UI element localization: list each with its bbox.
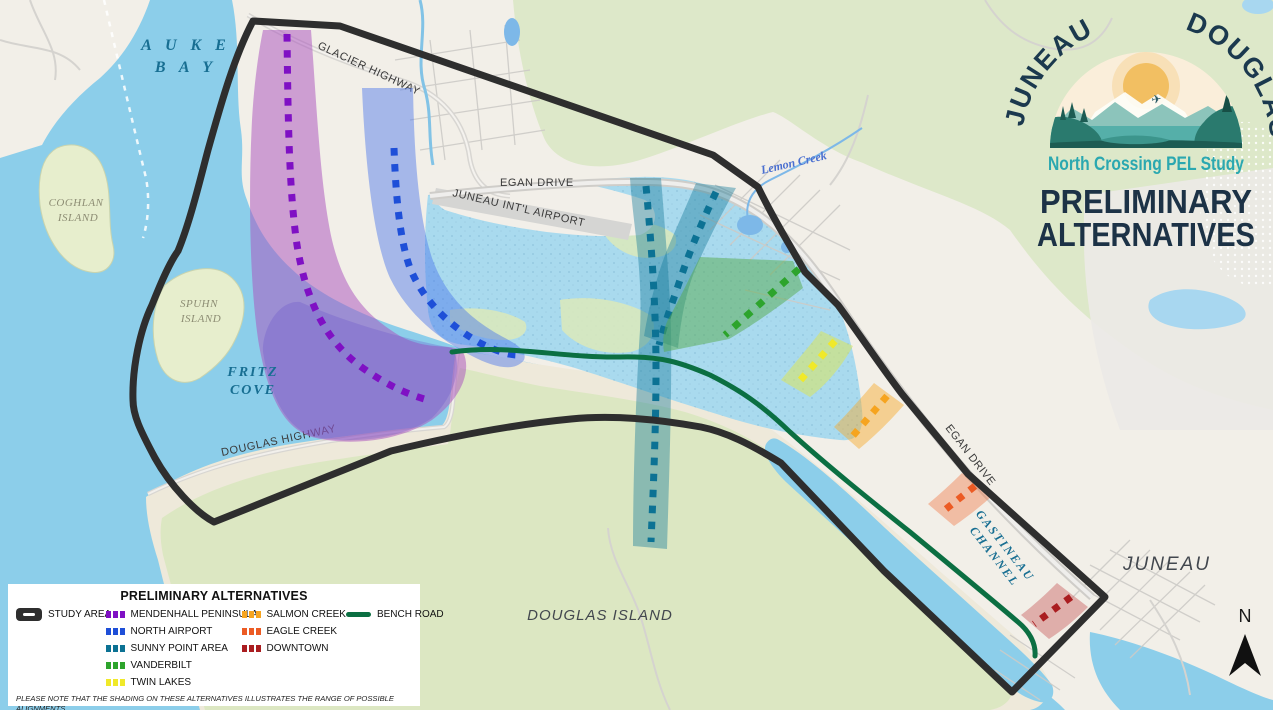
legend-item-vanderbilt[interactable]: VANDERBILT xyxy=(106,657,242,674)
egan-drive-north-label: EGAN DRIVE xyxy=(500,177,574,189)
spuhn-island-label: SPUHN xyxy=(180,298,218,310)
douglas-island-label: DOUGLAS ISLAND xyxy=(527,607,673,624)
dash-swatch-icon xyxy=(106,679,125,686)
fritz-cove-label: FRITZ xyxy=(226,365,278,380)
legend-label: EAGLE CREEK xyxy=(267,626,338,637)
legend-label: SALMON CREEK xyxy=(267,609,346,620)
dash-swatch-icon xyxy=(242,628,261,635)
legend-title: PRELIMINARY ALTERNATIVES xyxy=(16,589,412,603)
study-area-swatch-icon xyxy=(16,608,42,621)
fritz-cove-label-2: COVE xyxy=(230,383,276,398)
legend-label: BENCH ROAD xyxy=(377,609,444,620)
coghlan-island-label: COGHLAN xyxy=(49,197,104,209)
legend-item-bench-road[interactable]: BENCH ROAD xyxy=(346,606,444,623)
legend-label: VANDERBILT xyxy=(131,660,192,671)
legend-item-eagle-creek[interactable]: EAGLE CREEK xyxy=(242,623,346,640)
legend-item-north-airport[interactable]: NORTH AIRPORT xyxy=(106,623,242,640)
legend-label: NORTH AIRPORT xyxy=(131,626,213,637)
legend-label: TWIN LAKES xyxy=(131,677,192,688)
legend-item-study-area[interactable]: STUDY AREA xyxy=(16,606,106,623)
dash-swatch-icon xyxy=(106,645,125,652)
logo-heading-line2: ALTERNATIVES xyxy=(1037,216,1255,253)
legend-footnote: PLEASE NOTE THAT THE SHADING ON THESE AL… xyxy=(16,694,412,710)
bench-road-swatch-icon xyxy=(346,612,371,617)
legend-item-salmon-creek[interactable]: SALMON CREEK xyxy=(242,606,346,623)
dash-swatch-icon xyxy=(106,628,125,635)
auke-lake xyxy=(504,18,520,46)
legend-label: DOWNTOWN xyxy=(267,643,329,654)
logo-heading-line1: PRELIMINARY xyxy=(1040,183,1252,220)
north-arrow-label: N xyxy=(1239,606,1252,626)
dash-swatch-icon xyxy=(242,645,261,652)
logo-subtitle: North Crossing PEL Study xyxy=(1048,154,1244,175)
legend-item-sunny-point[interactable]: SUNNY POINT AREA xyxy=(106,640,242,657)
dash-swatch-icon xyxy=(242,611,261,618)
legend-panel: PRELIMINARY ALTERNATIVES STUDY AREA MEND… xyxy=(8,584,420,706)
legend-item-mendenhall[interactable]: MENDENHALL PENINSULA xyxy=(106,606,242,623)
legend-item-downtown[interactable]: DOWNTOWN xyxy=(242,640,346,657)
coghlan-island-label-2: ISLAND xyxy=(57,212,98,224)
juneau-city-label: JUNEAU xyxy=(1122,554,1211,575)
dash-swatch-icon xyxy=(106,662,125,669)
auke-bay-label-2: B A Y xyxy=(154,59,217,76)
spuhn-island-label-2: ISLAND xyxy=(180,313,221,325)
legend-label: SUNNY POINT AREA xyxy=(131,643,228,654)
map-canvas: GLACIER HIGHWAY EGAN DRIVE JUNEAU INT'L … xyxy=(0,0,1273,710)
legend-label: MENDENHALL PENINSULA xyxy=(131,609,258,620)
auke-bay-label: A U K E xyxy=(140,37,231,54)
legend-item-twin-lakes[interactable]: TWIN LAKES xyxy=(106,674,242,691)
legend-label: STUDY AREA xyxy=(48,609,111,620)
egan-pond xyxy=(737,215,763,235)
dash-swatch-icon xyxy=(106,611,125,618)
plane-icon: ✈ xyxy=(1150,92,1162,107)
